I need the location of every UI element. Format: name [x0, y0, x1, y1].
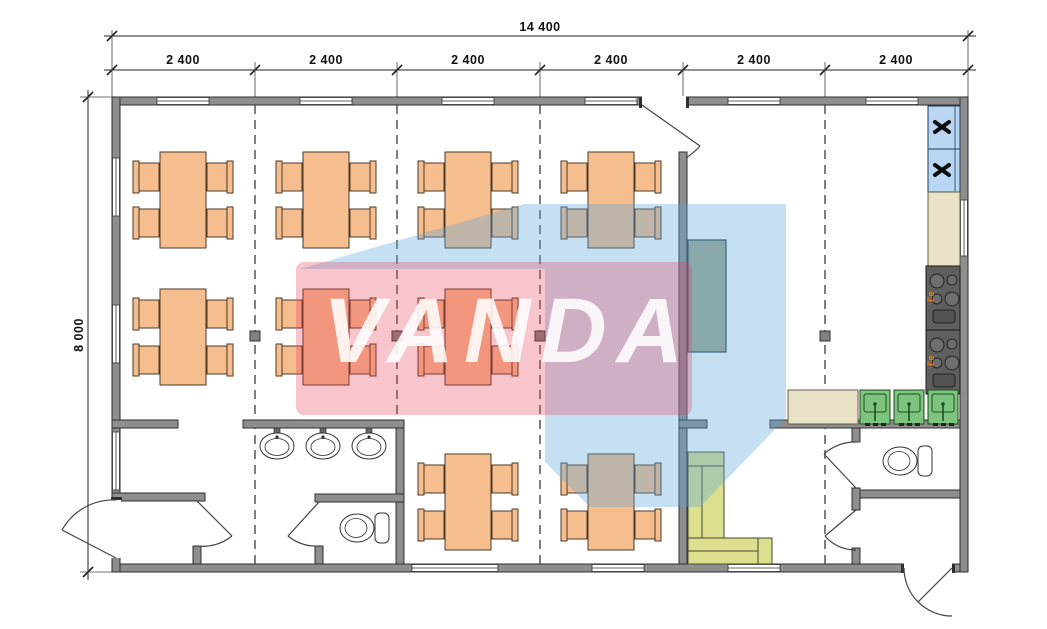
- jamb-wc-right-top: [852, 428, 860, 442]
- fridge-block: [928, 106, 960, 192]
- stove-2: Fe: [926, 330, 960, 394]
- wall-wc-left: [315, 494, 404, 502]
- dim-label-module-1: 2 400: [166, 53, 200, 67]
- dim-label-height: 8 000: [72, 318, 86, 352]
- floor-plan-canvas: 14 400 2 400 2 400 2 400 2 400 2 400 2 4…: [0, 0, 1047, 629]
- dim-label-module-6: 2 400: [879, 53, 913, 67]
- washbasin: [260, 428, 294, 459]
- window-top-3: [442, 98, 494, 105]
- jamb-wc-left-door: [315, 546, 323, 564]
- jamb-vestibule-door: [193, 546, 201, 564]
- wall-wc-right-divider: [852, 490, 960, 498]
- door-right-exterior: [904, 568, 952, 616]
- window-left-1: [113, 158, 120, 216]
- stove-label: Fe: [926, 355, 936, 366]
- window-top-4: [585, 98, 637, 105]
- door-top-entry: [642, 105, 700, 158]
- toilet-left: [340, 513, 389, 543]
- dining-table: [276, 152, 376, 248]
- window-bottom-2: [592, 565, 644, 572]
- wall-washbasin: [243, 420, 404, 428]
- dimension-top-total: 14 400: [104, 20, 976, 41]
- floor-plan-drawing: 14 400 2 400 2 400 2 400 2 400 2 400 2 4…: [0, 0, 1047, 629]
- kitchen-sink: [894, 390, 924, 426]
- window-top-6: [866, 98, 918, 105]
- washbasin: [352, 428, 386, 459]
- jamb-wc-right-mid: [852, 488, 860, 510]
- watermark-text: VANDA: [323, 280, 693, 382]
- dim-label-total-width: 14 400: [519, 20, 560, 34]
- wall-washroom-right: [396, 420, 404, 564]
- dimension-left-height: 8 000: [72, 90, 112, 580]
- washbasin: [306, 428, 340, 459]
- dining-table: [133, 152, 233, 248]
- kitchen-sink: [860, 390, 890, 426]
- stove-1: Fe: [926, 266, 960, 330]
- window-bottom-1: [412, 565, 498, 572]
- window-top-1: [157, 98, 209, 105]
- column-marker: [820, 331, 830, 341]
- window-left-2: [113, 305, 120, 363]
- dim-label-module-2: 2 400: [309, 53, 343, 67]
- wall-vestibule-left: [112, 493, 205, 501]
- dining-table: [418, 454, 518, 550]
- window-top-2: [300, 98, 352, 105]
- door-left-exterior: [62, 500, 116, 558]
- door-wc-right: [824, 442, 856, 488]
- dining-table: [133, 289, 233, 385]
- window-left-3: [113, 432, 120, 490]
- door-vestibule-right: [825, 510, 856, 550]
- vanda-watermark-logo: VANDA: [296, 204, 786, 507]
- dim-label-module-3: 2 400: [451, 53, 485, 67]
- window-top-5: [728, 98, 780, 105]
- dim-label-module-5: 2 400: [737, 53, 771, 67]
- door-wc-left: [288, 502, 319, 546]
- extension-lines: [112, 30, 968, 103]
- window-right-1: [961, 200, 968, 256]
- counter-right: [928, 192, 960, 266]
- wall-washroom-left-stub: [112, 420, 178, 428]
- dim-label-module-4: 2 400: [594, 53, 628, 67]
- counter-bottom: [788, 390, 858, 424]
- stove-label: Fe: [926, 291, 936, 302]
- kitchen-sink: [928, 390, 958, 426]
- door-vestibule-inner: [197, 501, 232, 546]
- toilet-right: [883, 446, 932, 476]
- column-marker: [250, 331, 260, 341]
- window-bottom-3: [728, 565, 780, 572]
